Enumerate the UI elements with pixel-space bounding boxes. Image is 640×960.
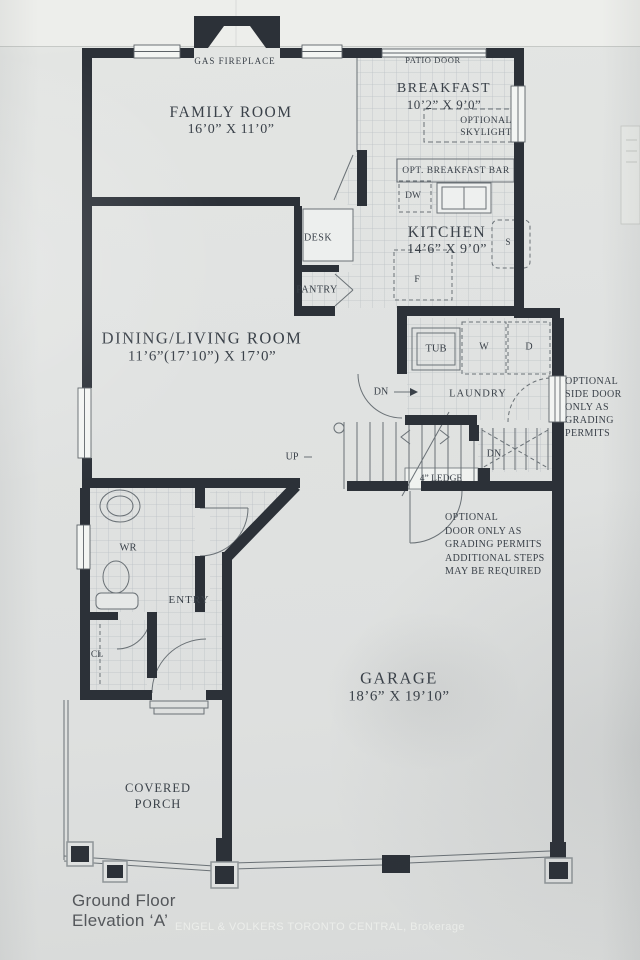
stair-rail-curl [334,423,344,433]
dining-living-label: DINING/LIVING ROOM 11’6”(17’10”) X 17’0” [102,329,303,366]
breakfast-bar-label: OPT. BREAKFAST BAR [402,166,509,176]
fridge-label: F [414,275,419,285]
dishwasher-label: DW [405,191,421,201]
floor-plan-photo: GAS FIREPLACE PATIO DOOR FAMILY ROOM 16’… [0,0,640,960]
dryer-label: D [525,342,532,353]
entry-label: ENTRY [168,594,209,606]
laundry-label: LAUNDRY [449,389,507,400]
garage-label: GARAGE 18’6” X 19’10” [348,669,449,706]
optional-skylight-label: OPTIONAL SKYLIGHT [460,115,512,139]
wr-toilet-tank [96,593,138,609]
brokerage-watermark: ENGEL & VOLKERS TORONTO CENTRAL, Brokera… [175,921,465,933]
dn-hall-label: DN [374,387,388,398]
entry-floor-corridor [157,612,222,690]
covered-porch-label: COVERED PORCH [125,780,191,812]
breakfast-label: BREAKFAST 10’2” X 9’0” [397,81,491,113]
floor-plan-drawing [0,0,640,960]
washer-label: W [479,342,488,353]
gas-fireplace-label: GAS FIREPLACE [194,56,275,66]
patio-door-label: PATIO DOOR [405,55,461,65]
pantry-label: PANTRY [296,285,338,296]
porch-posts [67,842,572,888]
up-label: UP [286,452,299,463]
sheet-title: Ground Floor Elevation ‘A’ [72,891,176,930]
paper-artifacts [0,0,640,224]
stove-label: S [505,237,510,247]
tub-label: TUB [426,344,447,355]
family-room-label: FAMILY ROOM 16’0” X 11’0” [169,104,292,138]
ledge-label: 4” LEDGE [420,474,462,484]
closet-label: CL [91,650,103,660]
desk-label: DESK [304,233,332,244]
side-door-note: OPTIONAL SIDE DOOR ONLY AS GRADING PERMI… [565,375,622,440]
kitchen-label: KITCHEN 14’6” X 9’0” [407,224,487,258]
optional-side-door [549,376,566,422]
dn-stair-label: DN [487,449,501,460]
adjacent-page-edge [621,126,640,224]
wr-label: WR [120,543,137,554]
garage-door-note: OPTIONAL DOOR ONLY AS GRADING PERMITS AD… [445,511,545,579]
